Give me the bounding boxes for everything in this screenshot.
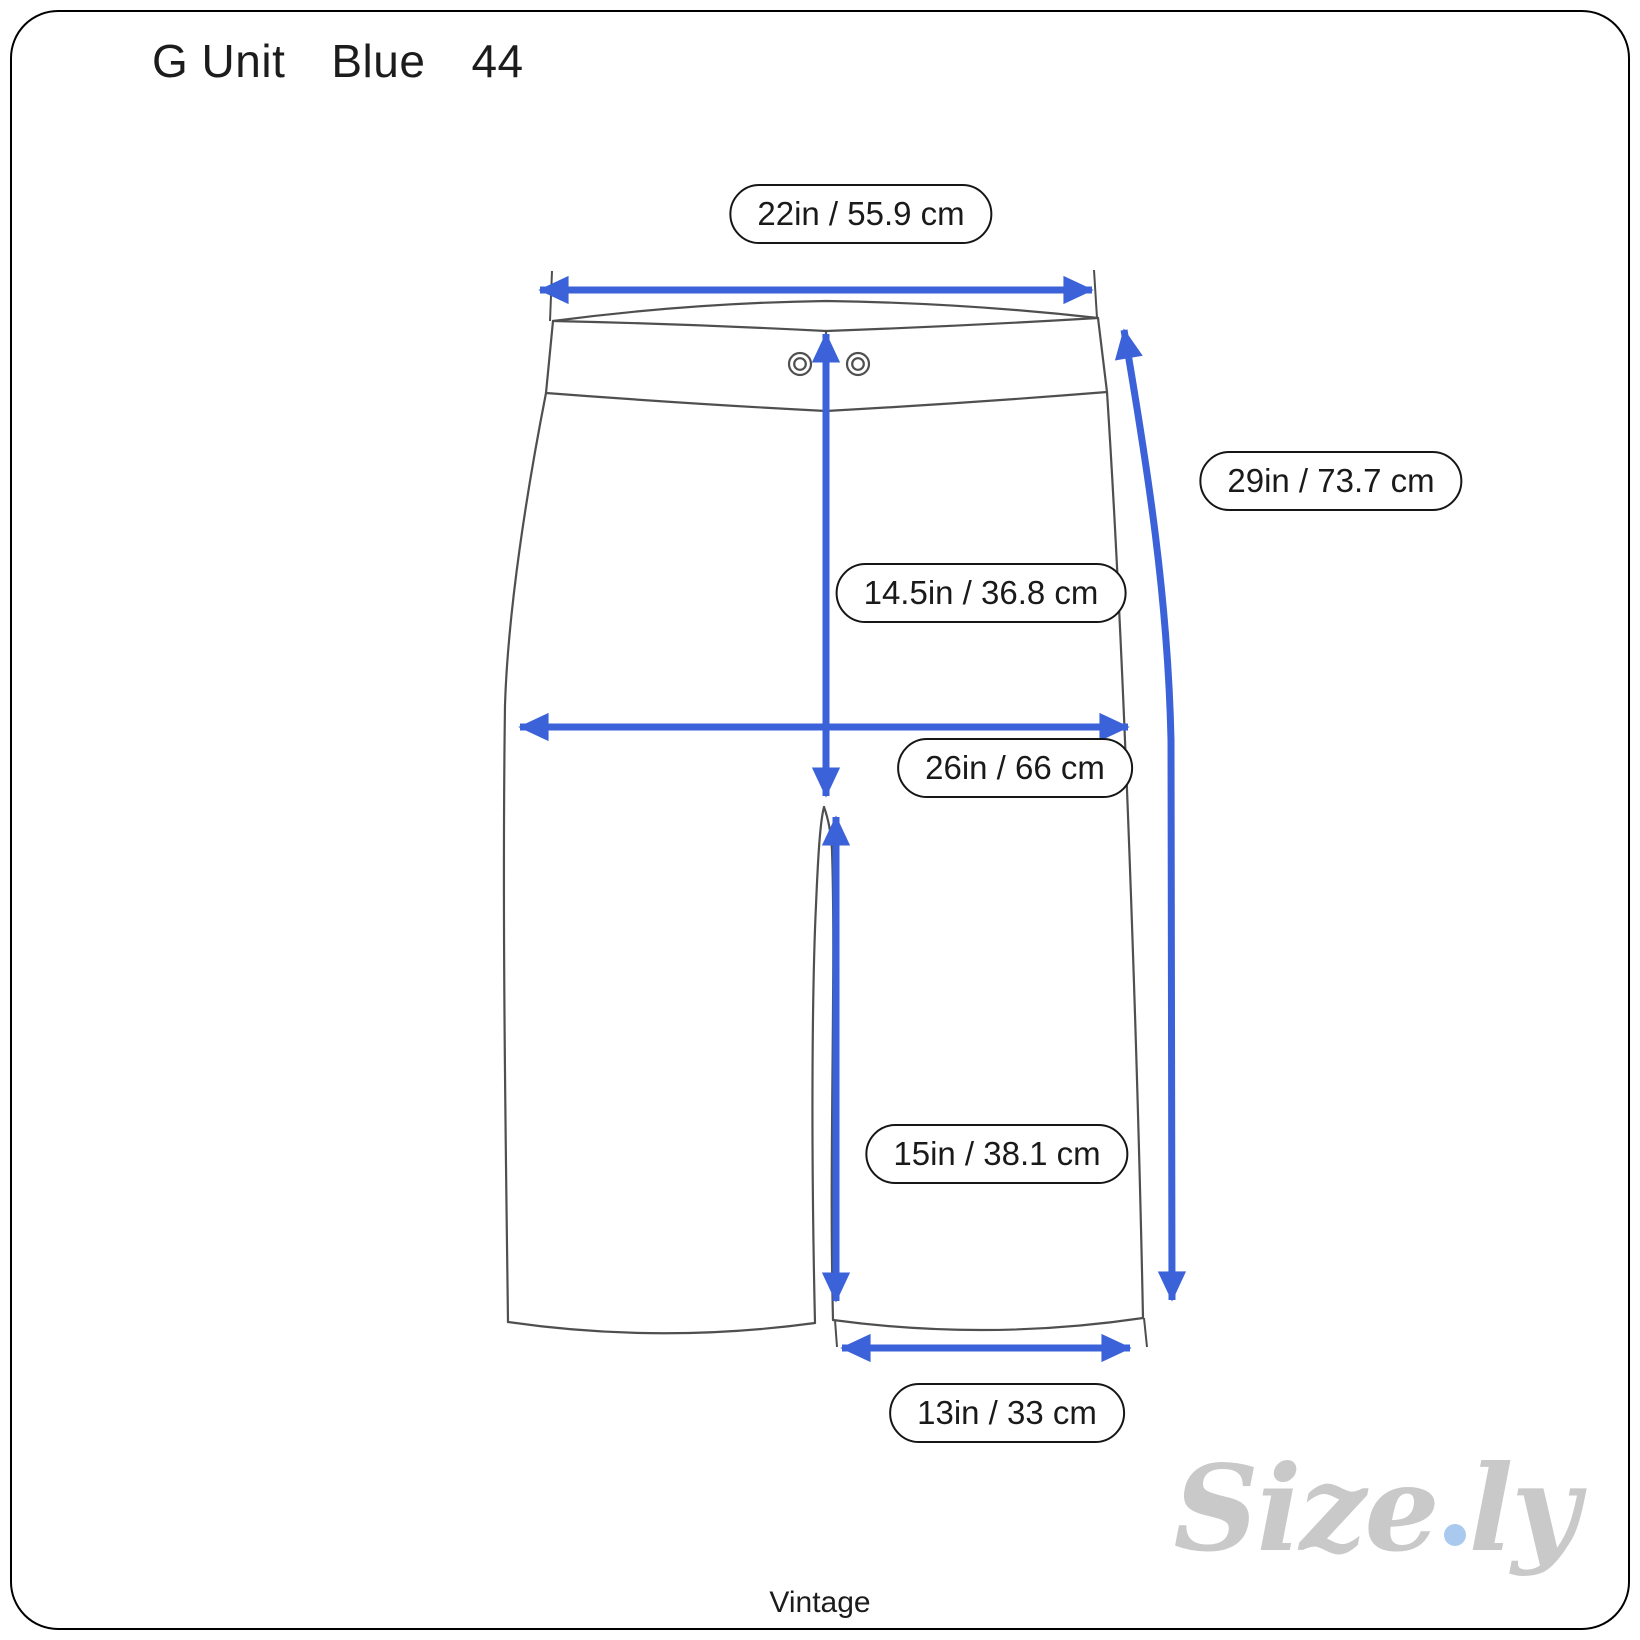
waist-tick-left [550,271,552,321]
watermark-text-suffix: ly [1469,1439,1578,1578]
waistband-grommet-right-inner [852,358,864,370]
hem-tick-outer [1144,1318,1147,1347]
waistband-grommet-left-inner [794,358,806,370]
back-waist-edge [553,301,1098,321]
watermark-dot-icon [1444,1524,1466,1546]
measurement-label-hip-width: 26in / 66 cm [897,738,1133,798]
hem-tick-inner [835,1320,837,1347]
measurement-label-side-length: 29in / 73.7 cm [1199,451,1462,511]
watermark-text-prefix: Size [1173,1439,1437,1578]
right-leg-hem [833,1318,1143,1330]
right-inner-seam [824,807,833,1320]
era-label: Vintage [0,1586,1640,1620]
front-waist-edge [553,318,1098,331]
extension-lines [550,270,1147,1347]
measurement-arrows [520,290,1172,1348]
waistband-left-edge [546,321,553,393]
left-inner-seam [812,807,824,1323]
side-length-arrow [1124,330,1172,1300]
measurement-label-front-rise: 14.5in / 36.8 cm [836,563,1127,623]
waist-tick-right [1094,270,1097,318]
left-leg-hem [508,1322,815,1333]
measurement-label-waist: 22in / 55.9 cm [729,184,992,244]
waistband-grommet-left [789,353,811,375]
sizely-watermark: Sizely [1173,1450,1578,1568]
waistband-grommet-right [847,353,869,375]
measurement-label-inseam: 15in / 38.1 cm [865,1124,1128,1184]
waistband-right-edge [1098,318,1107,392]
measurement-label-leg-opening: 13in / 33 cm [889,1383,1125,1443]
left-outer-seam [504,393,546,1322]
sizely-measurement-card: G Unit Blue 44 [0,0,1640,1640]
shorts-measurement-diagram [0,0,1640,1640]
